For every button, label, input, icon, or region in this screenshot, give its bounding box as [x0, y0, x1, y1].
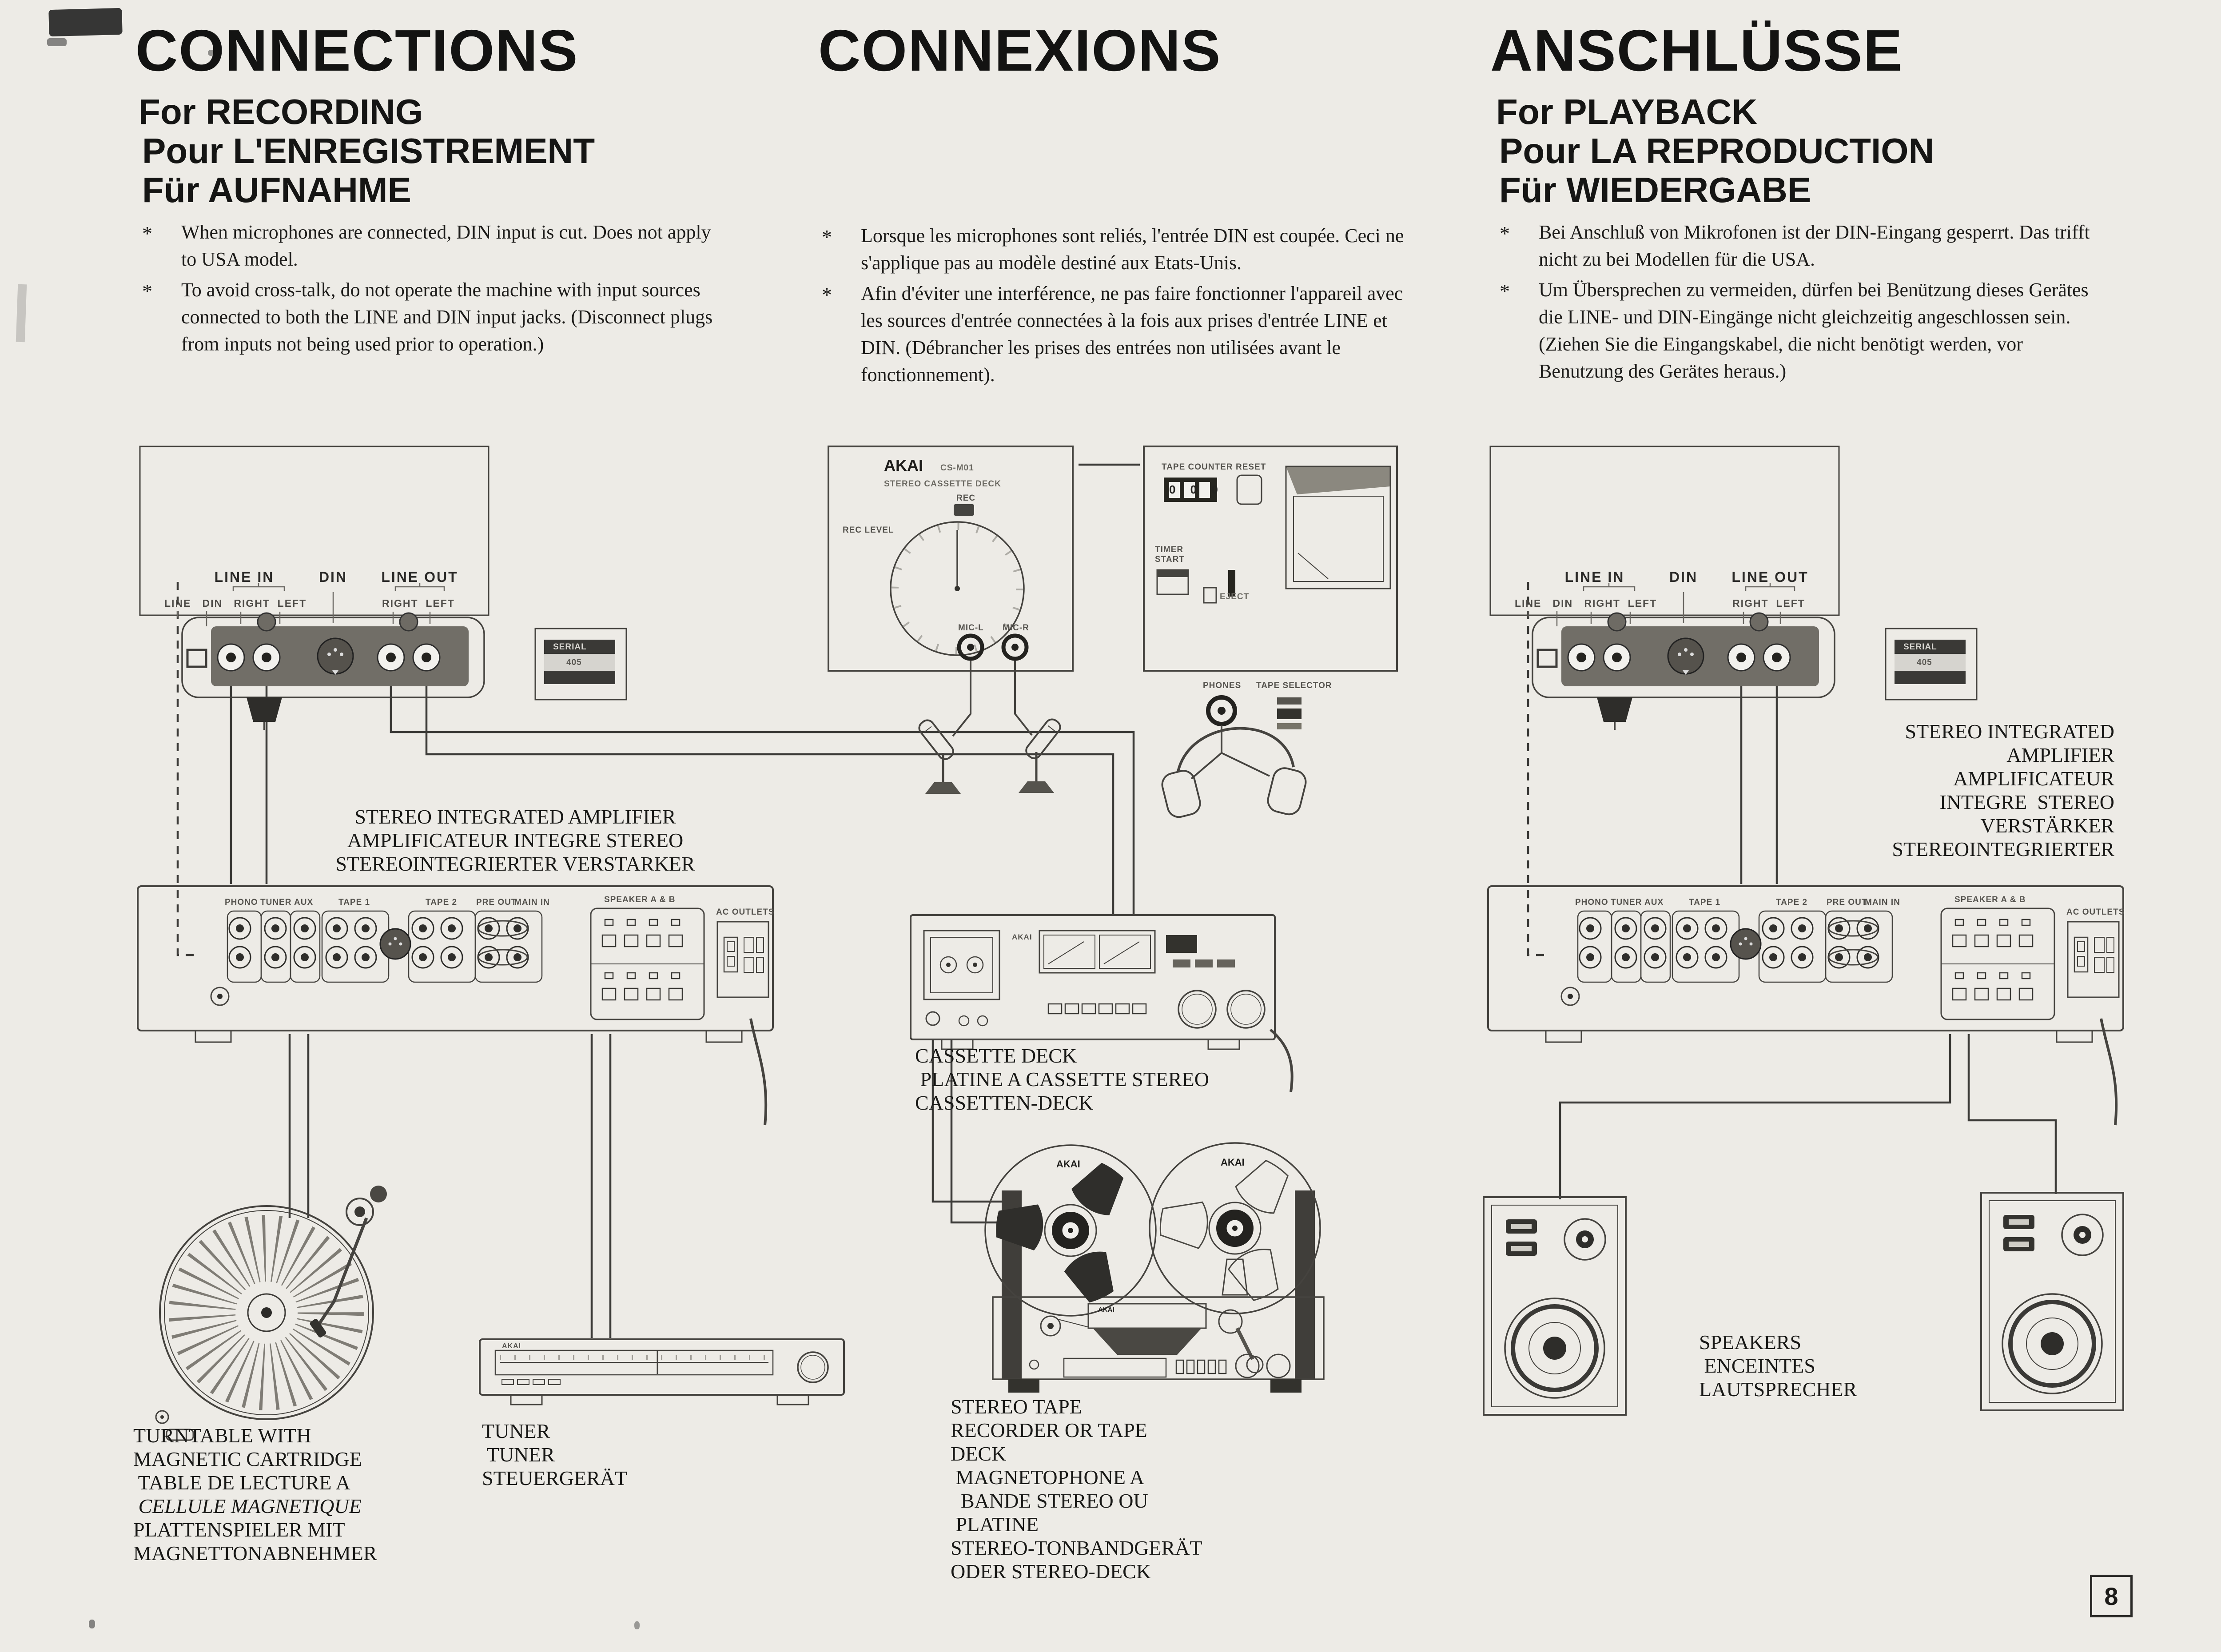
tuner-label: TUNER: [1611, 898, 1642, 908]
note-de-2: *Um Übersprechen zu vermeiden, dürfen be…: [1496, 276, 2109, 385]
notes-french: *Lorsque les microphones sont reliés, l'…: [818, 222, 1413, 392]
note-de-1: *Bei Anschluß von Mikrofonen ist der DIN…: [1496, 219, 2109, 273]
note-en-2: *To avoid cross-talk, do not operate the…: [139, 276, 723, 358]
eject-label: EJECT: [1220, 592, 1249, 602]
turntable-drawing: [124, 1168, 418, 1444]
speaker-right-drawing: [1977, 1188, 2132, 1415]
din-label: DIN: [1659, 569, 1708, 585]
caption-line: STEREOINTEGRIERTER: [1803, 837, 2114, 861]
speaker-terminals-label: SPEAKER A & B: [604, 895, 675, 905]
tape-selector-label: TAPE SELECTOR: [1256, 681, 1332, 691]
aux-label: AUX: [294, 898, 313, 908]
caption-line: STEREOINTEGRIERTER VERSTARKER: [331, 852, 700, 876]
cassette-door-shade: [1286, 466, 1390, 494]
reel-right: [1150, 1143, 1320, 1314]
ac-outlets-label: AC OUTLETS: [716, 908, 774, 917]
note-de-2-text: Um Übersprechen zu vermeiden, dürfen bei…: [1539, 279, 2089, 382]
caption-line: AMPLIFICATEUR INTEGRE STEREO: [331, 828, 700, 852]
power-cord: [2101, 1019, 2116, 1125]
ac-outlets: [717, 922, 768, 997]
note-fr-2-text: Afin d'éviter une interférence, ne pas f…: [861, 283, 1403, 386]
bullet-asterisk: *: [142, 220, 152, 247]
tuner-drawing: AKAI: [471, 1328, 862, 1430]
bullet-asterisk: *: [142, 278, 152, 305]
caption-line: CELLULE MAGNETIQUE: [133, 1494, 377, 1518]
serial-label: SERIAL: [553, 642, 587, 652]
caption-line: LAUTSPRECHER: [1699, 1377, 1857, 1401]
line-out-label: LINE OUT: [371, 569, 469, 585]
din-socket: [1731, 929, 1761, 959]
tuner-caption: TUNER TUNER STEUERGERÄT: [482, 1419, 627, 1490]
subheading-pour-enregistrement: Pour L'ENREGISTREMENT: [142, 133, 595, 169]
rca-jack-field: [211, 918, 528, 1005]
caption-line: MAGNETTONABNEHMER: [133, 1541, 377, 1565]
line-in-label: LINE IN: [207, 569, 282, 585]
power-cord: [751, 1019, 766, 1125]
timer-start-label: TIMER START: [1155, 545, 1195, 565]
line-out-label: LINE OUT: [1721, 569, 1819, 585]
reset-label: RESET: [1236, 462, 1266, 472]
jack-small-labels: LINE DIN RIGHT LEFT: [164, 597, 306, 609]
bullet-asterisk: *: [822, 223, 832, 251]
caption-line: DECK: [951, 1442, 1202, 1465]
caption-line: STEREO-TONBANDGERÄT: [951, 1536, 1202, 1560]
deck-model: CS-M01: [940, 463, 974, 473]
caption-line: AMPLIFIER: [1803, 743, 2114, 767]
mic-cable: [953, 661, 971, 736]
preout-label: PRE OUT: [1827, 898, 1867, 908]
cassette-deck-top-right-view: TAPE COUNTER RESET 0 0 0 TIMER START EJE…: [1137, 442, 1404, 833]
cassette-deck-rear-left: LINE IN DIN LINE OUT LINE DIN RIGHT LEFT…: [133, 438, 631, 731]
manual-page: CONNECTIONS CONNEXIONS ANSCHLÜSSE For RE…: [0, 0, 2221, 1652]
note-en-1-text: When microphones are connected, DIN inpu…: [181, 221, 711, 270]
notes-german: *Bei Anschluß von Mikrofonen ist der DIN…: [1496, 219, 2109, 388]
speaker-terminals-label: SPEAKER A & B: [1954, 895, 2026, 905]
scan-artifact: [89, 1620, 95, 1628]
aux-label: AUX: [1644, 898, 1664, 908]
caption-line: ODER STEREO-DECK: [951, 1560, 1202, 1583]
subheading-for-playback: For PLAYBACK: [1496, 94, 1757, 130]
cassette-deck-rear-right: LINE IN DIN LINE OUT LINE DIN RIGHT LEFT…: [1484, 438, 1981, 731]
caption-line: CASSETTE DECK: [915, 1044, 1209, 1067]
speakers-caption: SPEAKERS ENCEINTES LAUTSPRECHER: [1699, 1330, 1857, 1401]
note-de-1-text: Bei Anschluß von Mikrofonen ist der DIN-…: [1539, 221, 2090, 270]
cassette-deck-caption: CASSETTE DECK PLATINE A CASSETTE STEREO …: [915, 1044, 1209, 1115]
caption-line: TUNER: [482, 1443, 627, 1466]
notes-english: *When microphones are connected, DIN inp…: [139, 219, 723, 361]
caption-line: VERSTÄRKER: [1803, 814, 2114, 837]
caption-line: AMPLIFICATEUR: [1803, 767, 2114, 790]
tape-counter-label: TAPE COUNTER: [1162, 462, 1233, 472]
scan-artifact: [47, 38, 67, 46]
caption-line: BANDE STEREO OU: [951, 1489, 1202, 1513]
tape-recorder-drawing: AKAI AKAI AKAI: [959, 1119, 1350, 1399]
phono-label: PHONO: [1575, 898, 1608, 908]
subheading-pour-reproduction: Pour LA REPRODUCTION: [1499, 133, 1934, 169]
caption-line: TABLE DE LECTURE A: [133, 1471, 377, 1494]
line-in-label: LINE IN: [1557, 569, 1632, 585]
caption-line: SPEAKERS: [1699, 1330, 1857, 1354]
akai-logo: AKAI: [1221, 1157, 1245, 1168]
jack-small-labels: LINE DIN RIGHT LEFT: [1515, 597, 1657, 609]
caption-line: INTEGRE STEREO: [1803, 790, 2114, 814]
akai-logo: AKAI: [884, 456, 923, 475]
caption-line: MAGNETOPHONE A: [951, 1465, 1202, 1489]
tape1-label: TAPE 1: [1689, 898, 1720, 908]
tape-recorder-caption: STEREO TAPE RECORDER OR TAPE DECK MAGNET…: [951, 1395, 1202, 1583]
turntable-caption: TURNTABLE WITH MAGNETIC CARTRIDGE TABLE …: [133, 1424, 377, 1565]
akai-logo: AKAI: [502, 1342, 521, 1350]
speaker-left-drawing: [1479, 1193, 1635, 1419]
amplifier-caption-left: STEREO INTEGRATED AMPLIFIER AMPLIFICATEU…: [331, 805, 700, 876]
caption-line: CASSETTEN-DECK: [915, 1091, 1209, 1115]
mainin-label: MAIN IN: [1865, 898, 1900, 908]
caption-line: TUNER: [482, 1419, 627, 1443]
bullet-asterisk: *: [822, 281, 832, 308]
caption-line: RECORDER OR TAPE: [951, 1418, 1202, 1442]
caption-line: STEUERGERÄT: [482, 1466, 627, 1490]
serial-number: 405: [566, 658, 582, 668]
speaker-terminals: [591, 908, 704, 1019]
note-fr-2: *Afin d'éviter une interférence, ne pas …: [818, 280, 1413, 388]
counter-digits: 0 0 0: [1169, 483, 1224, 497]
caption-line: PLATTENSPIELER MIT: [133, 1518, 377, 1541]
heading-anschluesse: ANSCHLÜSSE: [1490, 21, 1903, 80]
tape2-label: TAPE 2: [1776, 898, 1807, 908]
phono-label: PHONO: [225, 898, 258, 908]
heading-connections: CONNECTIONS: [135, 21, 578, 80]
caption-line: PLATINE A CASSETTE STEREO: [915, 1067, 1209, 1091]
tape1-label: TAPE 1: [338, 898, 370, 908]
scan-artifact: [16, 284, 27, 342]
tonearm: [309, 1186, 387, 1338]
preout-label: PRE OUT: [476, 898, 517, 908]
scan-artifact: [48, 8, 123, 36]
amplifier-caption-right: STEREO INTEGRATED AMPLIFIER AMPLIFICATEU…: [1803, 720, 2114, 861]
amplifier-drawing: [133, 882, 782, 1131]
serial-label: SERIAL: [1903, 642, 1937, 652]
scan-artifact: [634, 1621, 640, 1629]
note-en-1: *When microphones are connected, DIN inp…: [139, 219, 723, 273]
page-number: 8: [2090, 1575, 2133, 1617]
phones-label: PHONES: [1203, 681, 1241, 691]
subheading-fuer-wiedergabe: Für WIEDERGABE: [1499, 172, 1811, 208]
headphone-cable: [1191, 725, 1270, 779]
microphone-left: [916, 717, 961, 794]
din-socket: [380, 929, 410, 959]
jack-small-labels: RIGHT LEFT: [382, 597, 455, 609]
caption-line: MAGNETIC CARTRIDGE: [133, 1447, 377, 1471]
deck-type: STEREO CASSETTE DECK: [884, 479, 1001, 489]
rec-level-label: REC LEVEL: [843, 525, 894, 535]
cassette-deck-top-left-view: AKAI CS-M01 STEREO CASSETTE DECK REC REC…: [824, 442, 1082, 833]
page-number-text: 8: [2104, 1582, 2118, 1611]
caption-line: STEREO INTEGRATED AMPLIFIER: [331, 805, 700, 828]
note-en-2-text: To avoid cross-talk, do not operate the …: [181, 279, 712, 355]
subheading-fuer-aufnahme: Für AUFNAHME: [142, 172, 411, 208]
caption-line: PLATINE: [951, 1513, 1202, 1536]
caption-line: STEREO INTEGRATED: [1803, 720, 2114, 743]
amplifier-rear-left: PHONO TUNER AUX TAPE 1 TAPE 2 PRE OUT MA…: [133, 882, 782, 1131]
headphones: [1160, 728, 1308, 820]
jack-small-labels: RIGHT LEFT: [1732, 597, 1805, 609]
rec-label: REC: [956, 494, 975, 503]
akai-logo: AKAI: [1012, 933, 1032, 942]
note-fr-1-text: Lorsque les microphones sont reliés, l'e…: [861, 225, 1404, 274]
subheading-for-recording: For RECORDING: [139, 94, 423, 130]
din-label: DIN: [309, 569, 358, 585]
serial-number: 405: [1917, 658, 1932, 668]
amplifier-drawing: [1484, 882, 2132, 1131]
caption-line: TURNTABLE WITH: [133, 1424, 377, 1447]
caption-line: ENCEINTES: [1699, 1354, 1857, 1377]
tuner-label: TUNER: [260, 898, 291, 908]
caption-line: STEREO TAPE: [951, 1395, 1202, 1418]
amplifier-rear-right: PHONO TUNER AUX TAPE 1 TAPE 2 PRE OUT MA…: [1484, 882, 2132, 1131]
mainin-label: MAIN IN: [514, 898, 550, 908]
mic-cable: [1015, 661, 1032, 735]
note-fr-1: *Lorsque les microphones sont reliés, l'…: [818, 222, 1413, 276]
akai-logo: AKAI: [1098, 1306, 1114, 1314]
mic-l-label: MIC-L: [958, 623, 984, 633]
akai-logo: AKAI: [1056, 1158, 1080, 1170]
mic-r-label: MIC-R: [1003, 623, 1029, 633]
bullet-asterisk: *: [1500, 278, 1510, 305]
ac-outlets-label: AC OUTLETS: [2066, 908, 2125, 917]
heading-connexions: CONNEXIONS: [818, 21, 1221, 80]
bullet-asterisk: *: [1500, 220, 1510, 247]
tape2-label: TAPE 2: [426, 898, 457, 908]
